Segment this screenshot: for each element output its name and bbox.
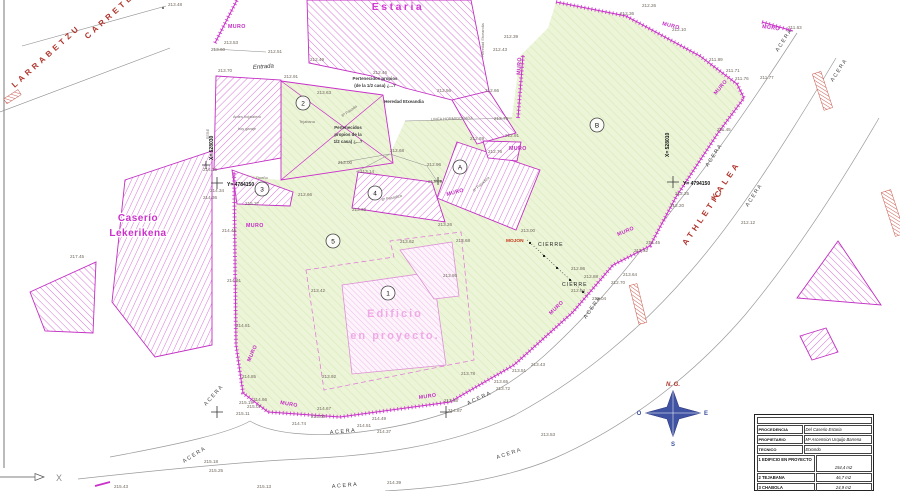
acera-label: ACERA	[203, 384, 225, 408]
acera-label: ACERA	[330, 428, 357, 436]
arrowhead-icon	[35, 474, 44, 481]
spot-label: 213.60	[211, 47, 225, 52]
spot-label: 212.12	[741, 220, 755, 225]
cierre-dot-icon	[543, 255, 545, 257]
spot-label: 214.87	[448, 408, 462, 413]
spot-label: 213.92	[322, 374, 336, 379]
parcel-circle-label: B	[595, 122, 599, 129]
spot-label: 213.62	[400, 239, 414, 244]
cierre-dot-icon	[529, 242, 531, 244]
title-block-item-value: 46,7 m2	[816, 473, 872, 482]
spot-label: 212.49	[310, 57, 324, 62]
coord-label: Y= 4794150	[683, 181, 710, 187]
small-label: (de la 1/2 casa) ¿...?	[354, 83, 396, 88]
building-estaria	[307, 0, 489, 100]
spot-label: 214.37	[377, 429, 391, 434]
small-label: Heredad Etxeandia	[384, 99, 424, 104]
compass-east-label: E	[704, 411, 708, 417]
spot-label: 213.32	[352, 207, 366, 212]
spot-label: 212.45	[646, 240, 660, 245]
spot-label: 212.66	[298, 192, 312, 197]
tiny-label: Heredad Etxeandia	[480, 23, 485, 57]
spot-label: 213.19	[428, 179, 442, 184]
title-block-row-value: Mª Ascension Urquijo Barrena	[804, 435, 872, 444]
spot-label: 213.48	[168, 2, 182, 7]
title-block-item: 1 EDIFICIO EN PROYECTO154,4 m2	[757, 455, 872, 472]
spot-label: 212.39	[504, 34, 518, 39]
spot-label: 215.18	[204, 459, 218, 464]
mojon-label: MOJON	[506, 238, 524, 244]
entrada-label: Entrada	[253, 63, 275, 70]
site-plan-drawing: 12345AB 213.48213.53213.60212.51213.7021…	[0, 0, 900, 491]
tiny-label: Dueño	[256, 175, 267, 180]
spot-label: 213.43	[531, 362, 545, 367]
spot-label: 212.36	[620, 11, 634, 16]
spot-label: 214.36	[203, 195, 217, 200]
acera-label: ACERA	[466, 390, 493, 407]
compass-west-label: O	[637, 411, 642, 417]
spot-label: 213.00	[338, 160, 352, 165]
spot-label: 212.43	[493, 47, 507, 52]
building-garaje	[214, 76, 281, 170]
spot-label: 213.64	[623, 272, 637, 277]
spot-label: 211.45	[717, 127, 731, 132]
spot-label: 213.14	[360, 169, 374, 174]
road-label: CARRETERA	[83, 0, 150, 41]
spot-label: 214.81	[236, 323, 250, 328]
spot-label: 213.68	[456, 238, 470, 243]
title-block: PROCEDENCIADel Caserio EstariaPROPIETARI…	[754, 414, 874, 491]
caserio-west-wing	[30, 262, 96, 333]
spot-label: 214.51	[357, 423, 371, 428]
spot-label: 213.42	[311, 288, 325, 293]
spot-label: 214.67	[317, 406, 331, 411]
spot-label: 212.86	[571, 266, 585, 271]
spot-label: 214.05	[311, 414, 325, 419]
spot-label: 212.66	[485, 88, 499, 93]
spot-label: 212.76	[488, 149, 502, 154]
title-block-row-value: Del Caserio Estaria	[804, 425, 872, 434]
cierre-label: CIERRE	[562, 282, 588, 288]
acera-label: ACERA	[332, 482, 359, 490]
parcel-circle-label: 4	[373, 190, 377, 197]
acera-label: ACERA	[745, 183, 765, 209]
title-block-row-label: PROCEDENCIA	[757, 425, 803, 434]
spot-label: 213.70	[218, 68, 232, 73]
spot-label: 211.89	[709, 57, 723, 62]
spot-label: 212.56	[437, 88, 451, 93]
parcel-circle-label: 1	[386, 290, 390, 297]
spot-label: 212.91	[284, 74, 298, 79]
spot-label: 212.46	[373, 70, 387, 75]
caserio-label: Caserío	[118, 213, 158, 224]
spot-label: 212.26	[642, 3, 656, 8]
labels-entrada: Entrada	[253, 63, 275, 70]
spot-label: 215.07	[247, 404, 261, 409]
small-label: propios de la	[334, 132, 362, 137]
title-block-row: TECNICOEtxondo	[757, 445, 872, 454]
compass: N. G. O E S	[637, 382, 708, 448]
spot-label: 217.45	[70, 254, 84, 259]
spot-label: 212.52	[634, 248, 648, 253]
spot-label: 214.74	[292, 421, 306, 426]
title-block-row: PROPIETARIOMª Ascension Urquijo Barrena	[757, 435, 872, 444]
small-label: 1/2 casa) ¿...?	[334, 139, 363, 144]
compass-north-label: N. G.	[666, 382, 680, 388]
road-lines-topleft	[0, 6, 170, 112]
spot-label: 211.77	[760, 75, 774, 80]
coord-label: Y= 4784150	[227, 182, 254, 188]
title-block-row-label: TECNICO	[757, 445, 803, 454]
spot-label: 213.65	[494, 379, 508, 384]
spot-label: 213.26	[438, 222, 452, 227]
estaria-label: Estaria	[372, 1, 425, 13]
title-block-rows: PROCEDENCIADel Caserio EstariaPROPIETARI…	[757, 425, 872, 454]
spot-label: 214.85	[242, 374, 256, 379]
tiny-label: Tejabana	[299, 119, 316, 124]
title-block-row-label: PROPIETARIO	[757, 435, 803, 444]
parcel-circle-label: A	[458, 164, 463, 171]
small-label: Pertenecidos propios	[353, 76, 398, 81]
spot-label: 212.75	[494, 116, 508, 121]
spot-label: 213.95	[443, 273, 457, 278]
edificio-label: en proyecto.	[350, 330, 439, 342]
road-label: KALEA	[710, 159, 743, 201]
spot-label: 215.11	[236, 411, 250, 416]
title-block-item-label: 2 TEJABANA	[757, 473, 815, 482]
caserio-lekerikena-buildings	[112, 151, 212, 357]
muro-label: MURO	[762, 24, 780, 32]
spot-label: 213.78	[461, 371, 475, 376]
title-block-item-label: 3 CHABOLA	[757, 483, 815, 491]
caserio-label: Lekerikena	[109, 228, 166, 239]
labels-mojon: MOJON	[506, 238, 524, 244]
spot-label: 215.27	[245, 201, 259, 206]
coord-label: X= 528010	[665, 132, 671, 157]
spot-label: 212.94	[571, 288, 585, 293]
spot-label: 213.53	[224, 40, 238, 45]
x-axis-label: X	[56, 473, 62, 483]
title-block-item: 3 CHABOLA24,9 m2	[757, 483, 872, 491]
parcel-circle-label: 3	[260, 186, 264, 193]
small-label: Pertenecidos	[334, 125, 362, 130]
spot-label: 212.88	[584, 274, 598, 279]
x-axis: X	[0, 473, 62, 483]
title-block-item-value: 154,4 m2	[816, 455, 872, 472]
spot-label: 213.51	[512, 368, 526, 373]
cierre-dot-icon	[569, 279, 571, 281]
tiny-label: hoy garaje	[238, 126, 256, 131]
spot-label: 211.71	[726, 68, 740, 73]
spot-label: 214.46	[222, 228, 236, 233]
muro-label: MURO	[662, 21, 681, 31]
muro-label: MURO	[246, 223, 264, 229]
tiny-label: Antes hojalatero	[233, 114, 261, 119]
spot-label: 213.00	[521, 228, 535, 233]
southeast-triangle	[797, 241, 881, 305]
spot-label: 213.63	[317, 90, 331, 95]
spot-label: 213.53	[541, 432, 555, 437]
grid-cross-icon	[211, 406, 223, 418]
spot-label: 212.70	[611, 280, 625, 285]
spot-label: 215.25	[209, 468, 223, 473]
spot-label: 212.91	[505, 133, 519, 138]
spot-label: 214.66	[253, 397, 267, 402]
acera-label: ACERA	[496, 447, 523, 461]
southeast-small	[800, 328, 838, 360]
spot-label: 214.39	[387, 480, 401, 485]
spot-label: 214.15	[203, 167, 217, 172]
cierre-dot-icon	[556, 267, 558, 269]
spot-label: 212.20	[670, 203, 684, 208]
spot-label: 213.72	[496, 386, 510, 391]
spot-label: 214.61	[227, 278, 241, 283]
muro-label: MURO	[509, 146, 527, 152]
title-block-item-value: 24,9 m2	[816, 483, 872, 491]
edificio-label: Edificio	[367, 308, 423, 320]
spot-label: 212.51	[268, 49, 282, 54]
title-block-row: PROCEDENCIADel Caserio Estaria	[757, 425, 872, 434]
title-block-items: 1 EDIFICIO EN PROYECTO154,4 m22 TEJABANA…	[757, 455, 872, 491]
spot-label: 214.49	[372, 416, 386, 421]
title-block-header	[757, 417, 872, 424]
spot-label: 212.69	[470, 136, 484, 141]
parcel-circle-label: 5	[331, 238, 335, 245]
labels-estaria: Estaria	[372, 1, 425, 13]
spot-label: 214.34	[210, 188, 224, 193]
title-block-item-label: 1 EDIFICIO EN PROYECTO	[757, 455, 815, 472]
cierre-label: CIERRE	[538, 242, 564, 248]
parcel-circle-label: 2	[301, 100, 305, 107]
spot-label: 215.13	[257, 484, 271, 489]
spot-label: 212.25	[675, 191, 689, 196]
spot-label: 212.68	[390, 148, 404, 153]
spot-label: 213.85	[444, 398, 458, 403]
muro-label: MURO	[516, 57, 523, 75]
parcel-tejabana	[281, 81, 393, 180]
title-block-row-value: Etxondo	[804, 445, 872, 454]
compass-south-label: S	[671, 442, 675, 448]
spot-label: 212.96	[427, 162, 441, 167]
spot-label: 211.76	[735, 76, 749, 81]
spot-label: 215.43	[114, 484, 128, 489]
road-label: LARRABETZU	[10, 23, 83, 90]
acera-label: ACERA	[830, 58, 850, 84]
title-block-item: 2 TEJABANA46,7 m2	[757, 473, 872, 482]
muro-label: MURO	[228, 24, 246, 30]
coord-label: X= 528030	[209, 135, 215, 160]
